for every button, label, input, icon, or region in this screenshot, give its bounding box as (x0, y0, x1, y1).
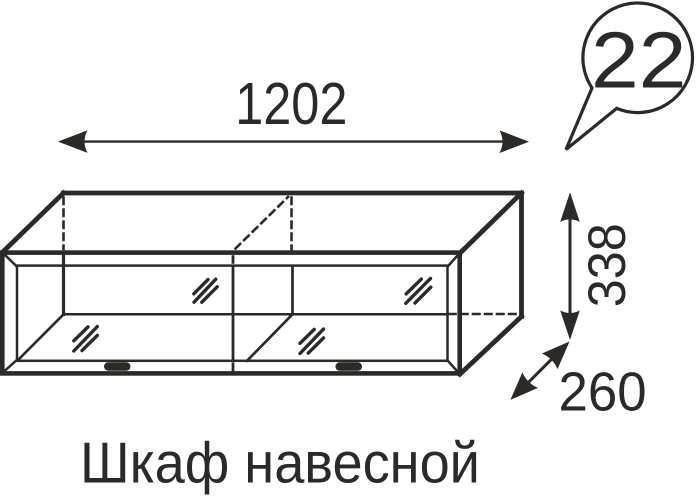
svg-text:Шкаф навесной: Шкаф навесной (80, 430, 480, 495)
svg-text:260: 260 (559, 361, 647, 422)
svg-text:338: 338 (577, 223, 636, 307)
svg-text:22: 22 (591, 15, 687, 104)
svg-text:1202: 1202 (235, 70, 347, 137)
